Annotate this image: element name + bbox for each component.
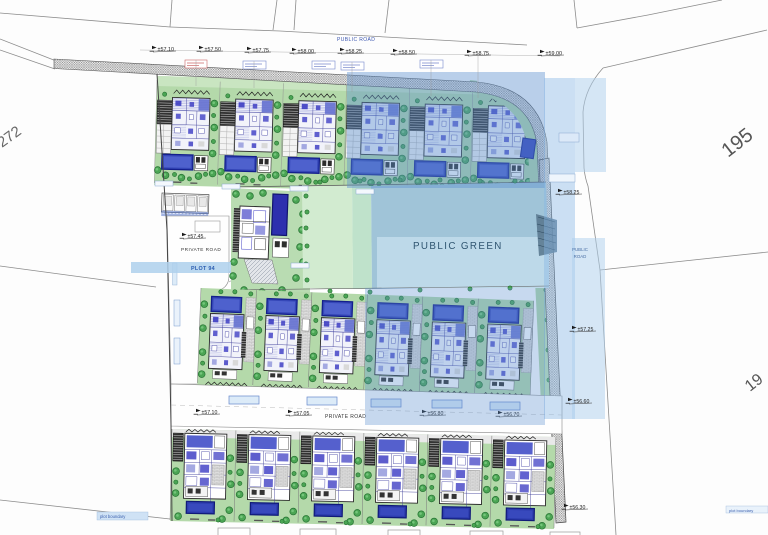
svg-text:±58.25: ±58.25 [346, 49, 362, 55]
svg-text:±57.10: ±57.10 [202, 410, 218, 416]
svg-text:±56.30: ±56.30 [570, 505, 586, 511]
svg-text:±59.00: ±59.00 [546, 51, 562, 57]
svg-text:ROAD: ROAD [574, 254, 587, 259]
svg-text:±56.60: ±56.60 [574, 399, 590, 405]
svg-text:PUBLIC: PUBLIC [572, 247, 588, 252]
svg-text:±57.05: ±57.05 [294, 411, 310, 417]
svg-text:±57.10: ±57.10 [158, 47, 174, 53]
svg-text:±57.75: ±57.75 [253, 48, 269, 54]
svg-text:±58.00: ±58.00 [298, 49, 314, 55]
svg-text:±57.45: ±57.45 [188, 234, 204, 240]
svg-text:PRIVATE ROAD: PRIVATE ROAD [181, 247, 221, 252]
svg-text:±57.50: ±57.50 [205, 47, 221, 53]
svg-text:±57.25: ±57.25 [578, 327, 594, 333]
svg-text:±58.50: ±58.50 [399, 50, 415, 56]
svg-text:plot boundary: plot boundary [729, 508, 753, 513]
svg-text:PUBLIC GREEN: PUBLIC GREEN [413, 241, 503, 252]
svg-text:plot boundary: plot boundary [100, 514, 126, 519]
svg-text:±58.25: ±58.25 [564, 190, 580, 196]
svg-text:PRIVATE ROAD: PRIVATE ROAD [325, 414, 366, 420]
svg-text:PUBLIC ROAD: PUBLIC ROAD [337, 37, 375, 43]
svg-text:PLOT 94: PLOT 94 [191, 266, 215, 272]
svg-text:±58.75: ±58.75 [473, 51, 489, 57]
